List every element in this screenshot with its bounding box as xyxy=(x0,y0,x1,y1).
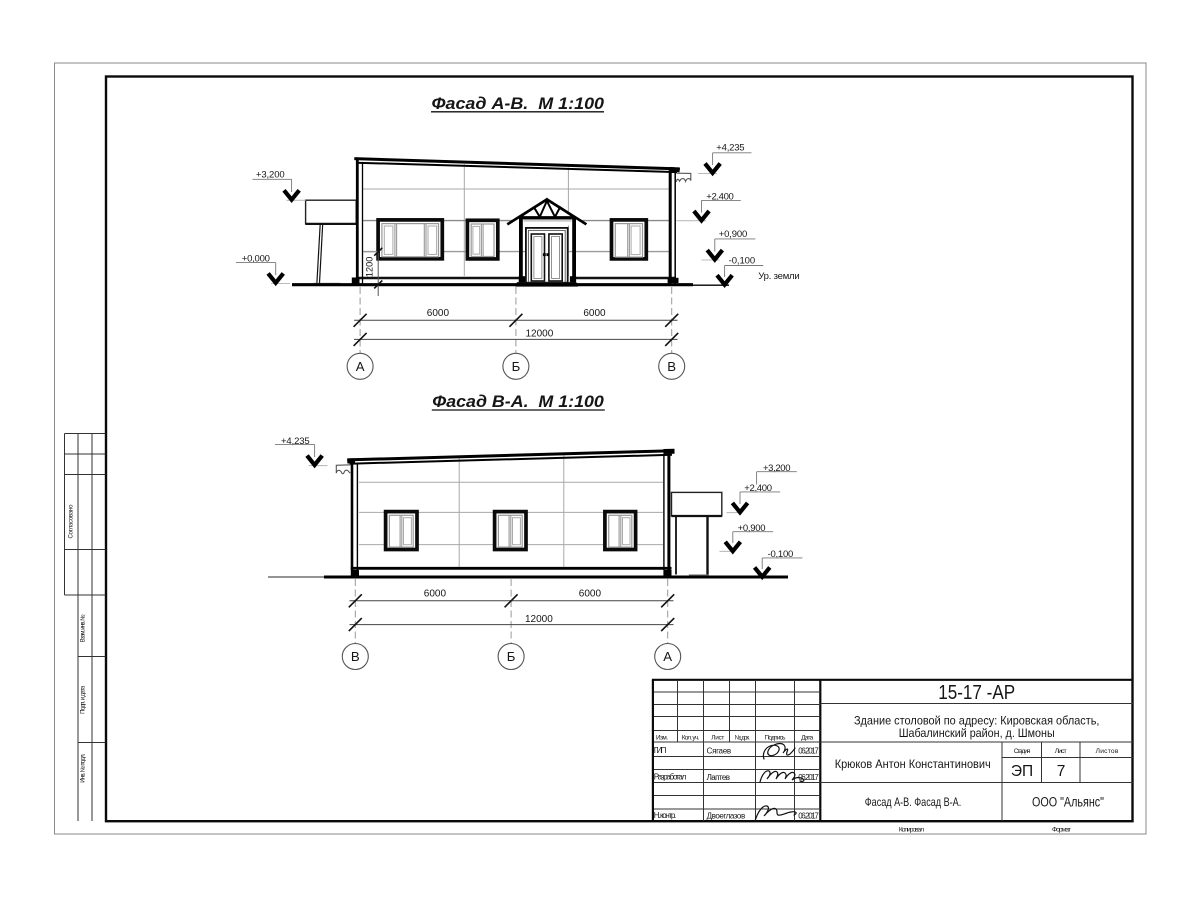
svg-text:Кол. уч.: Кол. уч. xyxy=(682,735,700,742)
svg-text:Здание столовой по адресу: Кир: Здание столовой по адресу: Кировская обл… xyxy=(854,714,1100,727)
svg-text:Крюков Антон Константинович: Крюков Антон Константинович xyxy=(835,757,991,771)
svg-text:6000: 6000 xyxy=(579,589,602,600)
svg-text:+3,200: +3,200 xyxy=(256,169,285,180)
svg-text:6000: 6000 xyxy=(427,308,450,319)
svg-text:Сягаев: Сягаев xyxy=(707,747,732,756)
svg-text:А: А xyxy=(663,649,672,664)
svg-text:Шабалинский район, д. Шмоны: Шабалинский район, д. Шмоны xyxy=(899,727,1055,740)
svg-text:Дата: Дата xyxy=(801,735,813,742)
svg-text:1200: 1200 xyxy=(365,257,375,277)
svg-text:Фасад В-А. М 1:100: Фасад В-А. М 1:100 xyxy=(432,393,604,411)
svg-text:Лист: Лист xyxy=(1055,748,1067,755)
svg-text:Фасад А-В. М 1:100: Фасад А-В. М 1:100 xyxy=(432,95,605,113)
svg-text:Согласовано: Согласовано xyxy=(69,504,75,539)
svg-text:Подп. и дата: Подп. и дата xyxy=(81,685,87,714)
svg-text:15-17 -АР: 15-17 -АР xyxy=(938,681,1015,704)
svg-text:6000: 6000 xyxy=(583,308,606,319)
svg-text:Изм.: Изм. xyxy=(656,735,668,742)
svg-text:Двоеглазов: Двоеглазов xyxy=(707,811,746,820)
svg-text:+2,400: +2,400 xyxy=(744,483,772,494)
svg-text:+4,235: +4,235 xyxy=(716,143,744,154)
svg-text:Разработал: Разработал xyxy=(654,772,687,781)
svg-text:12000: 12000 xyxy=(526,328,554,339)
svg-text:№ док.: № док. xyxy=(735,735,751,742)
svg-text:ООО "Альянс": ООО "Альянс" xyxy=(1032,794,1104,809)
svg-text:Ур. земли: Ур. земли xyxy=(758,271,800,282)
svg-text:7: 7 xyxy=(1057,763,1066,780)
svg-text:-0,100: -0,100 xyxy=(729,256,756,267)
svg-text:Формат: Формат xyxy=(1052,826,1071,833)
svg-text:Лаптев: Лаптев xyxy=(707,773,730,782)
svg-text:Фасад А-В. Фасад В-А.: Фасад А-В. Фасад В-А. xyxy=(865,795,962,809)
svg-text:Лист: Лист xyxy=(711,735,724,742)
svg-text:12000: 12000 xyxy=(525,614,553,625)
svg-text:+0,900: +0,900 xyxy=(719,229,748,240)
svg-text:Б: Б xyxy=(512,359,521,374)
svg-text:06.2017: 06.2017 xyxy=(798,746,819,755)
svg-text:Подпись: Подпись xyxy=(765,735,787,742)
svg-text:Копировал: Копировал xyxy=(899,826,924,833)
svg-text:ГИП: ГИП xyxy=(654,746,667,755)
svg-text:+2,400: +2,400 xyxy=(706,192,734,203)
svg-text:6000: 6000 xyxy=(424,589,447,600)
svg-text:Взам. инв. №: Взам. инв. № xyxy=(80,614,87,642)
svg-text:Инв. № подл.: Инв. № подл. xyxy=(80,753,87,783)
svg-text:Стадия: Стадия xyxy=(1014,748,1031,755)
svg-text:+4,235: +4,235 xyxy=(281,436,310,447)
svg-text:ЭП: ЭП xyxy=(1011,763,1033,780)
svg-text:В: В xyxy=(351,649,360,664)
svg-text:06.2017: 06.2017 xyxy=(798,811,819,820)
svg-text:А: А xyxy=(356,359,365,374)
svg-text:Б: Б xyxy=(507,649,516,664)
svg-text:Н. контр.: Н. контр. xyxy=(654,811,676,820)
svg-text:Листов: Листов xyxy=(1096,748,1119,755)
svg-text:В: В xyxy=(667,359,676,374)
